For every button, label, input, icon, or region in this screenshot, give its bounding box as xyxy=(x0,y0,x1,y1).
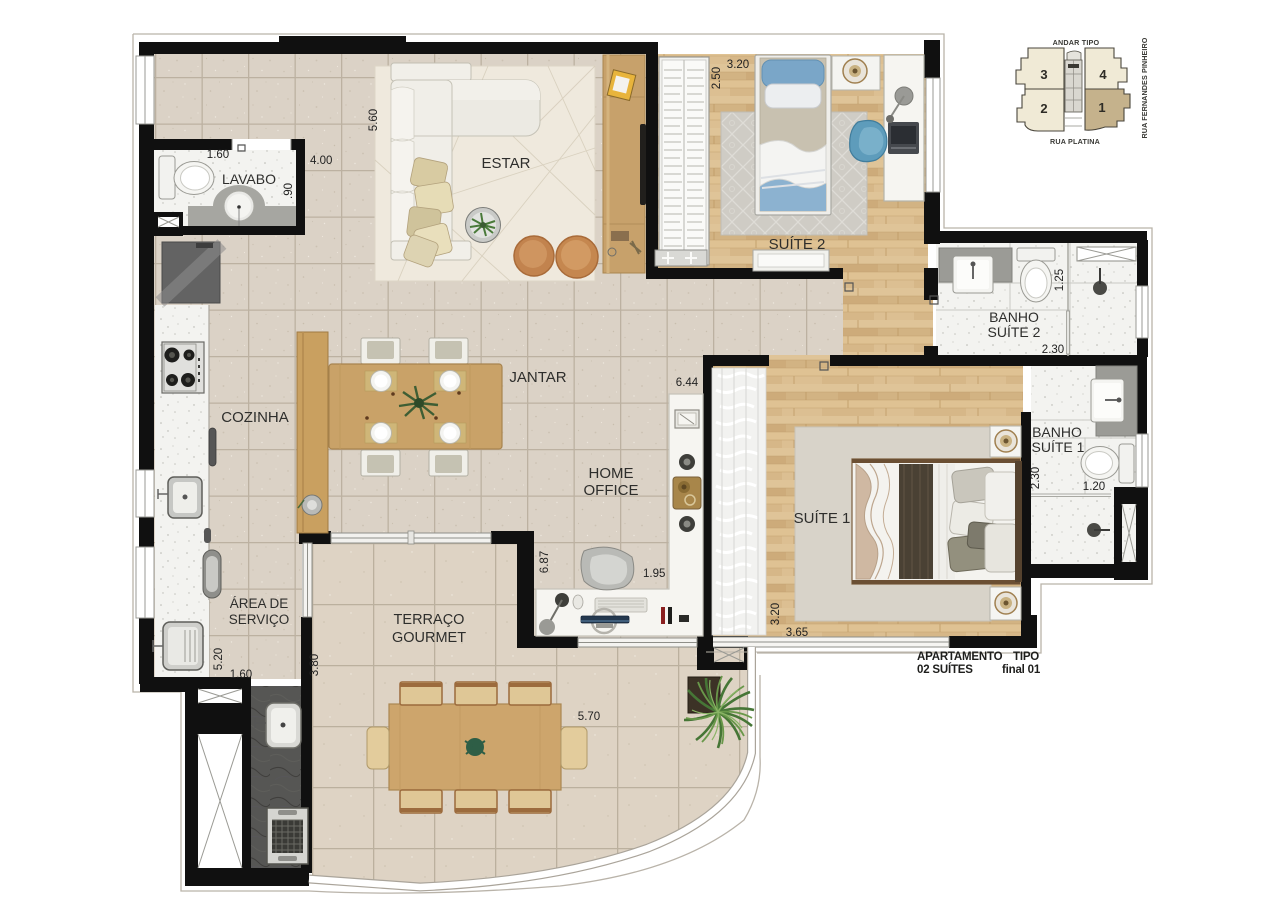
svg-text:6.44: 6.44 xyxy=(676,377,699,389)
svg-text:TIPO: TIPO xyxy=(1013,651,1039,663)
svg-text:1.25: 1.25 xyxy=(1054,269,1066,291)
svg-text:5.70: 5.70 xyxy=(578,711,600,723)
svg-text:1.20: 1.20 xyxy=(1083,481,1105,493)
svg-text:RUA FERNANDES PINHEIRO: RUA FERNANDES PINHEIRO xyxy=(1140,37,1149,138)
svg-text:2.30: 2.30 xyxy=(1042,344,1064,356)
svg-text:ESTAR: ESTAR xyxy=(482,155,531,172)
svg-text:ANDAR TIPO: ANDAR TIPO xyxy=(1053,38,1100,47)
svg-text:RUA PLATINA: RUA PLATINA xyxy=(1050,137,1100,146)
svg-text:2.30: 2.30 xyxy=(1030,467,1042,489)
svg-text:4: 4 xyxy=(1099,67,1107,82)
svg-text:6.87: 6.87 xyxy=(539,551,551,573)
svg-text:SERVIÇO: SERVIÇO xyxy=(229,612,290,627)
svg-text:SUÍTE 2: SUÍTE 2 xyxy=(988,324,1041,340)
svg-text:1: 1 xyxy=(1098,100,1105,115)
svg-text:final 01: final 01 xyxy=(1002,664,1041,676)
svg-text:LAVABO: LAVABO xyxy=(222,171,276,187)
svg-text:BANHO: BANHO xyxy=(1032,424,1082,440)
svg-text:4.00: 4.00 xyxy=(310,155,332,167)
svg-text:GOURMET: GOURMET xyxy=(392,630,466,646)
svg-text:3: 3 xyxy=(1040,67,1047,82)
svg-text:1.60: 1.60 xyxy=(207,149,229,161)
svg-text:5.60: 5.60 xyxy=(368,109,380,131)
svg-text:3.20: 3.20 xyxy=(727,59,749,71)
svg-text:OFFICE: OFFICE xyxy=(584,482,639,499)
svg-text:2: 2 xyxy=(1040,101,1047,116)
svg-text:3.80: 3.80 xyxy=(309,654,321,676)
svg-text:SUÍTE 1: SUÍTE 1 xyxy=(1032,439,1085,455)
svg-text:COZINHA: COZINHA xyxy=(221,409,289,426)
svg-text:BANHO: BANHO xyxy=(989,309,1039,325)
svg-text:APARTAMENTO: APARTAMENTO xyxy=(917,651,1003,663)
svg-text:TERRAÇO: TERRAÇO xyxy=(394,612,465,628)
svg-text:3.65: 3.65 xyxy=(786,627,808,639)
svg-text:JANTAR: JANTAR xyxy=(509,369,566,386)
svg-text:SUÍTE 1: SUÍTE 1 xyxy=(794,510,851,527)
svg-text:.90: .90 xyxy=(283,183,295,199)
svg-text:ÁREA DE: ÁREA DE xyxy=(230,596,289,611)
svg-text:02 SUÍTES: 02 SUÍTES xyxy=(917,663,973,676)
svg-text:5.20: 5.20 xyxy=(213,648,225,670)
svg-text:SUÍTE 2: SUÍTE 2 xyxy=(769,236,826,253)
svg-text:2.50: 2.50 xyxy=(711,67,723,89)
svg-text:1.60: 1.60 xyxy=(230,669,252,681)
svg-text:1.95: 1.95 xyxy=(643,568,665,580)
svg-text:HOME: HOME xyxy=(589,465,634,482)
svg-text:3.20: 3.20 xyxy=(770,603,782,625)
